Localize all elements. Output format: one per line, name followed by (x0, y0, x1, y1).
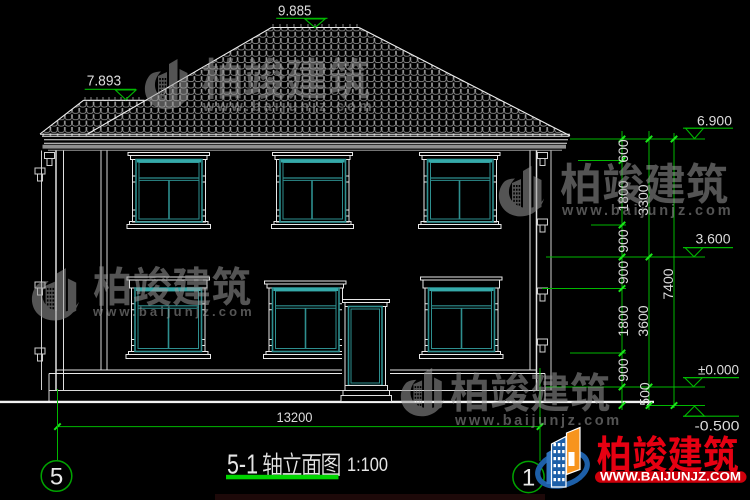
svg-text:1800: 1800 (615, 305, 631, 336)
svg-text:WWW.BAIJUNJZ.COM: WWW.BAIJUNJZ.COM (600, 472, 741, 484)
svg-text:7400: 7400 (660, 268, 676, 299)
svg-text:www.baijunjz.com: www.baijunjz.com (92, 304, 255, 319)
svg-text:±0.000: ±0.000 (698, 361, 739, 377)
svg-text:600: 600 (615, 139, 631, 163)
svg-text:1:100: 1:100 (347, 455, 388, 476)
svg-text:7.893: 7.893 (87, 72, 122, 89)
svg-text:1: 1 (522, 465, 535, 492)
svg-text:6.900: 6.900 (697, 112, 732, 128)
svg-text:900: 900 (615, 229, 631, 253)
svg-text:5: 5 (50, 464, 63, 491)
svg-text:13200: 13200 (277, 410, 313, 425)
svg-text:900: 900 (615, 358, 631, 382)
svg-text:-0.500: -0.500 (695, 418, 740, 434)
svg-text:9.885: 9.885 (278, 2, 312, 19)
svg-text:900: 900 (615, 261, 631, 285)
svg-text:3.600: 3.600 (696, 230, 731, 246)
svg-text:3600: 3600 (635, 305, 651, 336)
svg-text:www.baijunjz.com: www.baijunjz.com (454, 413, 622, 429)
svg-text:www.baijunjz.com: www.baijunjz.com (561, 203, 734, 219)
svg-text:500: 500 (636, 382, 652, 406)
svg-text:www.baijunjz.com: www.baijunjz.com (202, 99, 375, 115)
